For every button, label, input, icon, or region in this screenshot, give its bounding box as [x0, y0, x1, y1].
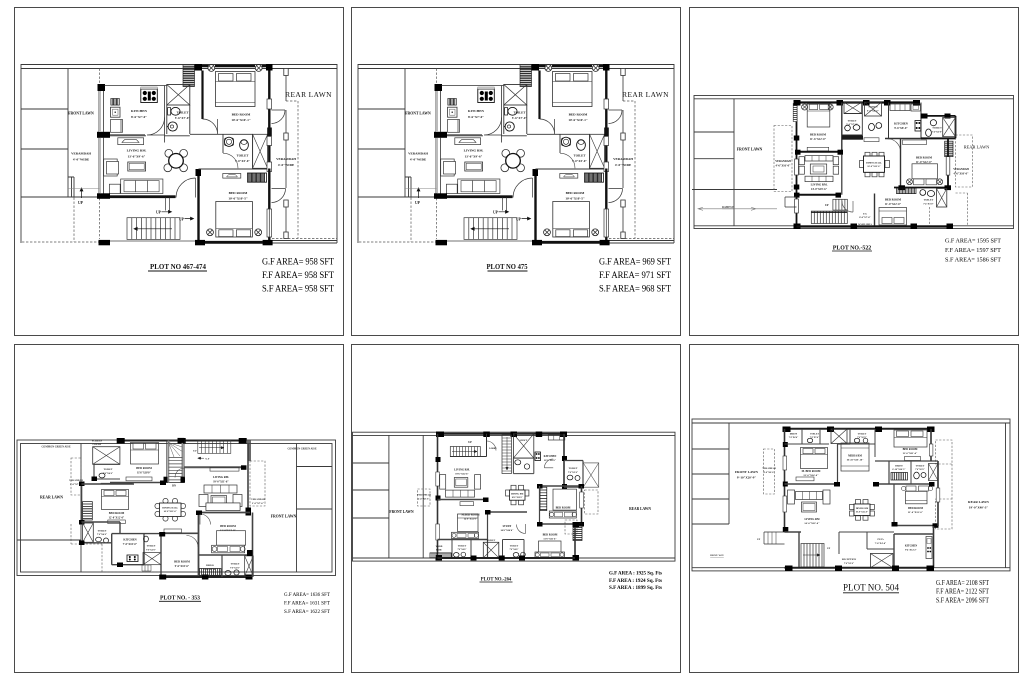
- svg-text:7'-0"X4'-0": 7'-0"X4'-0": [875, 543, 887, 545]
- svg-text:8'-0"X7'-0": 8'-0"X7'-0": [859, 217, 871, 219]
- svg-text:KITCHEN: KITCHEN: [131, 109, 148, 113]
- svg-text:11'-6"X12'-0": 11'-6"X12'-0": [810, 138, 827, 141]
- svg-text:FRONT LAWN: FRONT LAWN: [271, 515, 297, 519]
- svg-text:DINING HALL: DINING HALL: [162, 507, 178, 510]
- svg-text:14'-0"X13'-0": 14'-0"X13'-0": [164, 511, 177, 513]
- svg-text:VERAMDAH: VERAMDAH: [408, 152, 428, 156]
- svg-text:LIVING RM: LIVING RM: [804, 518, 819, 521]
- svg-text:5'-6"X7'-0": 5'-6"X7'-0": [175, 116, 190, 120]
- svg-text:LIVING RM.: LIVING RM.: [811, 183, 828, 187]
- svg-text:SHAFT: SHAFT: [520, 439, 528, 442]
- svg-text:KITCHEN: KITCHEN: [123, 539, 136, 542]
- svg-text:REAR LAWN: REAR LAWN: [629, 507, 651, 511]
- svg-text:7'0"X5'0": 7'0"X5'0": [146, 549, 157, 551]
- svg-text:7'0"X5'0": 7'0"X5'0": [230, 567, 241, 569]
- svg-text:BED ROOM: BED ROOM: [903, 448, 918, 451]
- svg-text:BED ROOM: BED ROOM: [109, 512, 125, 515]
- svg-text:KITCHEN: KITCHEN: [905, 545, 917, 548]
- svg-text:VERANDAH: VERANDAH: [775, 160, 791, 163]
- svg-text:BED ROOM: BED ROOM: [136, 467, 152, 470]
- svg-text:S.F AREA= 2096 SFT: S.F AREA= 2096 SFT: [936, 597, 990, 604]
- svg-text:G.F AREA= 969 SFT: G.F AREA= 969 SFT: [599, 257, 672, 267]
- svg-text:9'-10"X20'-9": 9'-10"X20'-9": [737, 476, 757, 480]
- svg-text:FRONT LAWN: FRONT LAWN: [735, 470, 758, 474]
- svg-text:PUJA: PUJA: [877, 538, 883, 541]
- svg-text:FRONT LAWN: FRONT LAWN: [68, 112, 94, 116]
- svg-text:REAR LAWN: REAR LAWN: [968, 500, 989, 504]
- svg-text:BED ROOM: BED ROOM: [566, 191, 586, 195]
- svg-text:BED ROOM: BED ROOM: [543, 534, 558, 537]
- svg-text:REAR LAWN: REAR LAWN: [40, 496, 63, 500]
- svg-text:BED ROOM: BED ROOM: [569, 113, 589, 117]
- svg-text:TOILET: TOILET: [568, 467, 578, 470]
- svg-text:11'0"X11'6": 11'0"X11'6": [543, 538, 557, 541]
- svg-text:5'-6"X7'-0": 5'-6"X7'-0": [512, 116, 527, 120]
- svg-text:COURT: COURT: [93, 443, 102, 446]
- svg-text:BED ROOM: BED ROOM: [908, 507, 923, 510]
- svg-text:TOILET: TOILET: [847, 120, 857, 123]
- svg-text:4'-0"X8'-6": 4'-0"X8'-6": [418, 498, 430, 500]
- svg-text:DINING RM: DINING RM: [856, 508, 868, 510]
- svg-text:7'4"X5'0": 7'4"X5'0": [923, 202, 934, 205]
- svg-text:DINING HALL: DINING HALL: [866, 162, 882, 165]
- svg-text:2'-6"X7'-6": 2'-6"X7'-6": [252, 502, 265, 505]
- svg-text:9'-6"X10'-6": 9'-6"X10'-6": [175, 565, 190, 568]
- svg-text:10'-10"X16'-10": 10'-10"X16'-10": [847, 459, 865, 462]
- svg-text:PLOT NO. - 353: PLOT NO. - 353: [160, 595, 200, 602]
- svg-text:10'-6"X10'-1": 10'-6"X10'-1": [231, 118, 251, 122]
- svg-text:KITCHEN: KITCHEN: [468, 109, 485, 113]
- svg-text:10'-6"X10'-5": 10'-6"X10'-5": [565, 197, 585, 201]
- svg-text:UP: UP: [415, 201, 421, 205]
- svg-text:WASH AREA: WASH AREA: [858, 223, 872, 226]
- svg-text:VERANDAH: VERANDAH: [251, 498, 265, 501]
- svg-text:REAR LAWN: REAR LAWN: [964, 145, 990, 150]
- svg-text:UP: UP: [493, 211, 499, 215]
- svg-text:FRONT LAWN: FRONT LAWN: [389, 510, 414, 514]
- svg-text:5'-0"X7'-6": 5'-0"X7'-6": [846, 124, 858, 126]
- svg-text:PLOT NO.-264: PLOT NO.-264: [481, 576, 512, 582]
- svg-text:TOILET: TOILET: [458, 546, 467, 548]
- svg-text:TOILET: TOILET: [924, 199, 934, 202]
- svg-text:TOILET: TOILET: [177, 111, 190, 115]
- svg-text:DRESS: DRESS: [206, 564, 214, 567]
- svg-text:7'0"X4'6": 7'0"X4'6": [509, 549, 518, 551]
- svg-text:F.F AREA : 1924 Sq. Fts: F.F AREA : 1924 Sq. Fts: [609, 578, 663, 584]
- svg-text:M. BED ROOM: M. BED ROOM: [802, 470, 821, 473]
- svg-text:TOILET: TOILET: [858, 434, 867, 436]
- svg-text:S.F AREA : 1899 Sq. Fts: S.F AREA : 1899 Sq. Fts: [609, 585, 663, 591]
- svg-text:DN: DN: [172, 485, 176, 488]
- svg-text:G.F AREA= 958 SFT: G.F AREA= 958 SFT: [262, 257, 335, 267]
- svg-text:S.F AREA= 1622 SFT: S.F AREA= 1622 SFT: [284, 609, 330, 615]
- svg-text:DRESS: DRESS: [895, 466, 903, 468]
- svg-text:PLOT NO. 504: PLOT NO. 504: [843, 583, 899, 594]
- svg-text:LIVING RM.: LIVING RM.: [464, 149, 484, 153]
- svg-text:4'-0"X8'-0": 4'-0"X8'-0": [763, 472, 774, 474]
- svg-text:14'-0"X19'-6": 14'-0"X19'-6": [811, 188, 828, 191]
- svg-text:6'-0"X6'-0": 6'-0"X6'-0": [867, 109, 880, 112]
- svg-text:BED ROOM: BED ROOM: [916, 156, 932, 160]
- svg-text:DRIVE WAY: DRIVE WAY: [710, 554, 724, 557]
- svg-text:TOILET: TOILET: [146, 545, 156, 548]
- svg-text:G.F AREA : 1925 Sq. Fts: G.F AREA : 1925 Sq. Fts: [609, 571, 663, 577]
- svg-text:PLOT NO.-522: PLOT NO.-522: [833, 244, 872, 251]
- svg-text:TOILET: TOILET: [237, 154, 250, 158]
- svg-text:VERANDAH: VERANDAH: [417, 494, 431, 497]
- svg-text:10'-0"X12'-0": 10'-0"X12'-0": [856, 512, 869, 514]
- svg-text:4'-6"X16'-0": 4'-6"X16'-0": [776, 165, 791, 168]
- svg-text:TOILET: TOILET: [97, 530, 107, 533]
- svg-text:13'-6"X9'-6": 13'-6"X9'-6": [128, 155, 146, 159]
- svg-text:F.F AREA= 958 SFT: F.F AREA= 958 SFT: [262, 270, 335, 280]
- svg-text:LOBBY: LOBBY: [489, 448, 497, 450]
- svg-text:KITCHEN: KITCHEN: [544, 455, 557, 458]
- svg-text:LIVING RM.: LIVING RM.: [127, 149, 147, 153]
- svg-text:TOILET: TOILET: [514, 111, 527, 115]
- svg-text:REAR LAWN: REAR LAWN: [285, 90, 332, 99]
- svg-text:7'4"X5'0": 7'4"X5'0": [932, 131, 943, 134]
- svg-text:F.F AREA= 1631 SFT: F.F AREA= 1631 SFT: [284, 601, 330, 607]
- svg-text:8'-6"X7'-0": 8'-6"X7'-0": [468, 115, 484, 119]
- svg-text:19'-0"X40'-3": 19'-0"X40'-3": [969, 506, 989, 510]
- svg-text:10'0"X10'0": 10'0"X10'0": [501, 529, 515, 532]
- svg-text:UP: UP: [468, 441, 472, 444]
- svg-text:7'-0"X5'-0": 7'-0"X5'-0": [572, 159, 587, 163]
- svg-text:6'-10"X10'-5": 6'-10"X10'-5": [892, 469, 905, 471]
- svg-text:14'-0"X12'-0": 14'-0"X12'-0": [804, 522, 820, 525]
- svg-text:F.F AREA= 2122 SFT: F.F AREA= 2122 SFT: [936, 589, 990, 596]
- svg-text:12'-0"X12'-0": 12'-0"X12'-0": [109, 516, 125, 519]
- svg-text:BED ROOM: BED ROOM: [232, 113, 252, 117]
- svg-text:UP: UP: [827, 547, 831, 550]
- svg-text:BED ROOM: BED ROOM: [556, 507, 571, 510]
- svg-text:ROBE: ROBE: [436, 549, 443, 551]
- svg-text:U.P: U.P: [206, 458, 210, 461]
- svg-text:10'0"X12'0": 10'0"X12'0": [512, 497, 523, 499]
- svg-text:PLOT NO 467-474: PLOT NO 467-474: [150, 262, 206, 271]
- svg-text:UP: UP: [825, 204, 829, 207]
- svg-text:11'-0"X12'-0": 11'-0"X12'-0": [908, 511, 924, 514]
- svg-text:7'-0"X5'-0": 7'-0"X5'-0": [235, 159, 250, 163]
- svg-text:G.F AREA= 1595 SFT: G.F AREA= 1595 SFT: [945, 238, 1001, 245]
- svg-text:REAR LAWN: REAR LAWN: [622, 90, 669, 99]
- svg-text:TOILET: TOILET: [230, 563, 240, 566]
- svg-text:UP: UP: [757, 538, 761, 541]
- svg-text:7'4"X5'4": 7'4"X5'4": [844, 563, 855, 565]
- svg-text:KITCHEN: KITCHEN: [894, 122, 909, 126]
- svg-text:7'4"X4'4": 7'4"X4'4": [97, 534, 108, 536]
- svg-text:13'-6"X9'-6": 13'-6"X9'-6": [465, 155, 483, 159]
- svg-text:9'4"X12'2": 9'4"X12'2": [905, 549, 917, 552]
- svg-text:TOILET: TOILET: [103, 468, 113, 471]
- svg-text:7'0"X4'6": 7'0"X4'6": [457, 549, 466, 551]
- svg-text:7'4"X5'0": 7'4"X5'0": [915, 469, 925, 471]
- svg-text:TOILET: TOILET: [574, 154, 587, 158]
- svg-text:TOILET: TOILET: [487, 540, 496, 542]
- svg-text:4'-6"X10'-0": 4'-6"X10'-0": [954, 173, 969, 176]
- svg-text:BED ROOM: BED ROOM: [229, 191, 249, 195]
- svg-text:F.F AREA= 1597 SFT: F.F AREA= 1597 SFT: [945, 247, 1001, 254]
- svg-text:G.F AREA= 1636 SFT: G.F AREA= 1636 SFT: [284, 592, 330, 598]
- svg-text:COMMON GREEN AISE: COMMON GREEN AISE: [287, 448, 316, 451]
- svg-text:7'4"X4'4": 7'4"X4'4": [789, 437, 799, 439]
- svg-text:19'-0"X11'-6": 19'-0"X11'-6": [213, 480, 229, 483]
- svg-text:UP: UP: [78, 201, 84, 205]
- svg-text:9'-6"X8'-0": 9'-6"X8'-0": [894, 127, 908, 130]
- svg-text:TOILET: TOILET: [868, 106, 878, 109]
- svg-text:TOILET: TOILET: [510, 546, 519, 548]
- svg-text:LIVING RM.: LIVING RM.: [454, 469, 470, 472]
- svg-text:10'-0"X12'-0": 10'-0"X12'-0": [867, 166, 880, 168]
- svg-text:DINING RM: DINING RM: [511, 494, 523, 496]
- svg-text:U.P: U.P: [193, 450, 197, 453]
- svg-text:LIVING RM.: LIVING RM.: [213, 476, 230, 479]
- svg-text:7'-0"X10'-0": 7'-0"X10'-0": [123, 543, 138, 546]
- svg-text:VERANDAH: VERANDAH: [762, 467, 775, 470]
- svg-text:P.G: P.G: [863, 213, 867, 216]
- svg-text:11'-0"X11'-6": 11'-0"X11'-6": [903, 452, 918, 455]
- svg-text:FRONT LAWN: FRONT LAWN: [405, 112, 431, 116]
- svg-text:FRONT LAWN: FRONT LAWN: [737, 148, 763, 152]
- svg-text:WARD: WARD: [436, 545, 443, 548]
- svg-text:S.F AREA= 1586 SFT: S.F AREA= 1586 SFT: [945, 257, 1001, 264]
- svg-text:BED ROOM: BED ROOM: [220, 525, 236, 528]
- svg-text:4'-0"WIDE: 4'-0"WIDE: [410, 158, 427, 162]
- svg-text:PLOT NO 475: PLOT NO 475: [487, 262, 528, 271]
- svg-text:COMMON GREEN AISE: COMMON GREEN AISE: [41, 446, 70, 449]
- svg-text:G.F AREA= 2108 SFT: G.F AREA= 2108 SFT: [936, 580, 990, 587]
- svg-text:STUDY: STUDY: [503, 525, 512, 528]
- svg-text:10'-6"X10'-5": 10'-6"X10'-5": [228, 197, 248, 201]
- svg-text:S.F AREA= 968 SFT: S.F AREA= 968 SFT: [599, 284, 672, 294]
- svg-text:VERAMDAH: VERAMDAH: [71, 152, 91, 156]
- svg-text:UP: UP: [156, 211, 162, 215]
- svg-text:TOILET: TOILET: [916, 466, 925, 468]
- svg-text:19'6"X12'6": 19'6"X12'6": [455, 473, 469, 476]
- svg-text:DRESS: DRESS: [790, 434, 798, 436]
- svg-text:7'0"X5'4": 7'0"X5'4": [568, 472, 579, 474]
- svg-text:4'-0"WIDE: 4'-0"WIDE: [73, 158, 90, 162]
- svg-text:11'6"X10'0": 11'6"X10'0": [137, 471, 151, 474]
- svg-text:BED ROOM: BED ROOM: [174, 561, 190, 564]
- svg-text:VERANDAH: VERANDAH: [953, 168, 969, 171]
- svg-text:S.F AREA= 958 SFT: S.F AREA= 958 SFT: [262, 284, 335, 294]
- svg-text:8'-6"X7'-0": 8'-6"X7'-0": [131, 115, 147, 119]
- svg-text:F.F AREA= 971 SFT: F.F AREA= 971 SFT: [599, 270, 672, 280]
- svg-text:RAMP UP: RAMP UP: [722, 206, 734, 209]
- svg-text:BED ROOM: BED ROOM: [885, 198, 901, 202]
- svg-text:TOILET: TOILET: [810, 434, 819, 436]
- svg-text:TOILET: TOILET: [932, 127, 942, 130]
- svg-text:11'-0"X12'-0": 11'-0"X12'-0": [885, 203, 902, 206]
- svg-text:RECEPTION: RECEPTION: [842, 558, 856, 561]
- svg-text:BED ROOM: BED ROOM: [810, 133, 826, 137]
- svg-text:MEDIA RM: MEDIA RM: [848, 455, 862, 458]
- svg-text:10'-6"X10'-1": 10'-6"X10'-1": [568, 118, 588, 122]
